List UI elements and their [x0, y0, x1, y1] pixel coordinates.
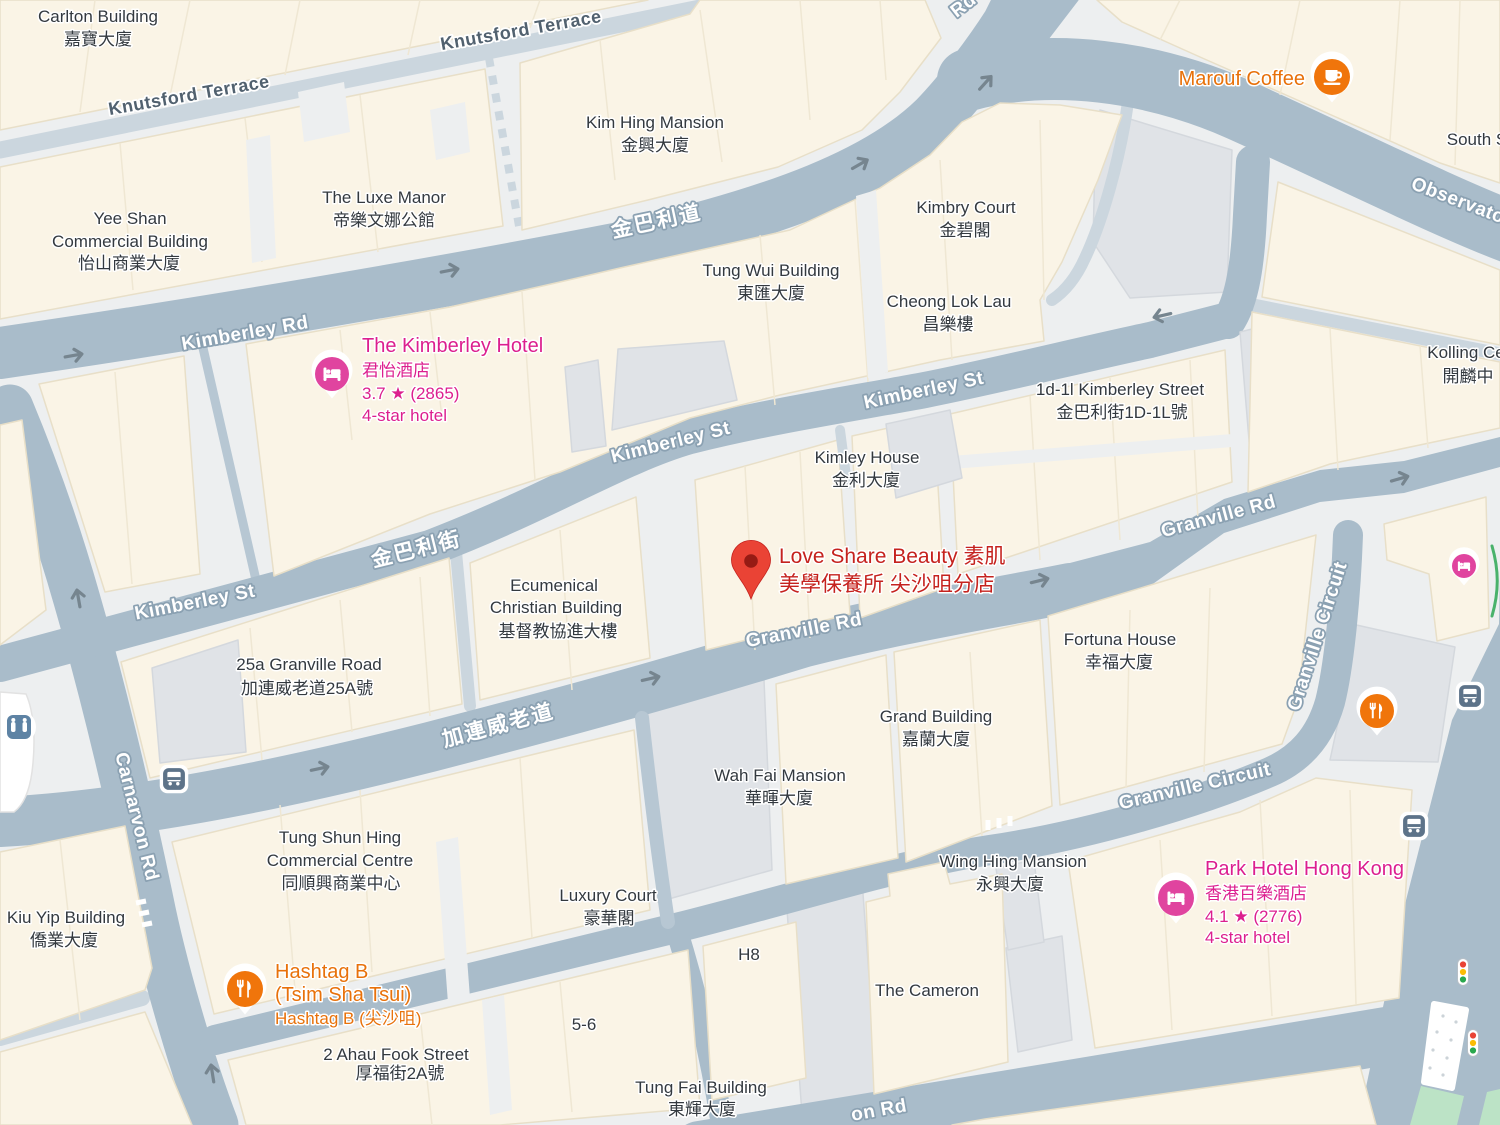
svg-text:怡山商業大廈: 怡山商業大廈	[78, 254, 180, 273]
svg-text:豪華閣: 豪華閣	[584, 908, 635, 928]
svg-text:Commercial Building: Commercial Building	[52, 232, 208, 251]
svg-text:永興大廈: 永興大廈	[976, 875, 1044, 894]
svg-text:The Kimberley Hotel: The Kimberley Hotel	[362, 335, 543, 357]
svg-text:Wah Fai Mansion: Wah Fai Mansion	[714, 766, 846, 785]
svg-text:僑業大廈: 僑業大廈	[30, 931, 98, 950]
svg-text:(Tsim Sha Tsui): (Tsim Sha Tsui)	[275, 984, 411, 1006]
svg-text:Tung Fai Building: Tung Fai Building	[635, 1078, 767, 1097]
svg-text:Love Share Beauty 素肌: Love Share Beauty 素肌	[779, 545, 1005, 568]
svg-text:Kolling Ce: Kolling Ce	[1427, 343, 1500, 362]
svg-text:厚福街2A號: 厚福街2A號	[356, 1064, 445, 1083]
svg-text:帝樂文娜公館: 帝樂文娜公館	[333, 211, 435, 230]
svg-text:25a Granville Road: 25a Granville Road	[236, 655, 382, 674]
svg-text:Hashtag B (尖沙咀): Hashtag B (尖沙咀)	[275, 1009, 421, 1028]
svg-text:Kimbry Court: Kimbry Court	[916, 198, 1015, 217]
svg-text:Tung Shun Hing: Tung Shun Hing	[279, 828, 401, 847]
svg-text:金興大廈: 金興大廈	[621, 136, 689, 155]
svg-text:Carlton Building: Carlton Building	[38, 7, 158, 26]
svg-text:Kimley House: Kimley House	[815, 448, 920, 467]
svg-text:Luxury Court: Luxury Court	[559, 886, 657, 905]
svg-text:加連威老道25A號: 加連威老道25A號	[241, 679, 373, 698]
svg-text:金利大廈: 金利大廈	[832, 471, 900, 490]
svg-text:金碧閣: 金碧閣	[940, 221, 991, 240]
svg-text:Cheong Lok Lau: Cheong Lok Lau	[887, 292, 1012, 311]
svg-text:The Luxe Manor: The Luxe Manor	[322, 188, 446, 207]
svg-text:3.7 ★ (2865): 3.7 ★ (2865)	[362, 384, 459, 403]
svg-text:Christian Building: Christian Building	[490, 598, 622, 617]
svg-text:South S: South S	[1447, 130, 1500, 149]
svg-text:4-star hotel: 4-star hotel	[362, 406, 447, 425]
svg-text:東輝大廈: 東輝大廈	[668, 1100, 736, 1119]
svg-text:嘉寶大廈: 嘉寶大廈	[64, 29, 132, 49]
svg-text:東匯大廈: 東匯大廈	[737, 284, 805, 303]
svg-text:華暉大廈: 華暉大廈	[745, 789, 813, 808]
svg-text:開麟中: 開麟中	[1443, 367, 1494, 386]
svg-text:基督教協進大樓: 基督教協進大樓	[499, 622, 618, 641]
svg-text:Hashtag B: Hashtag B	[275, 961, 368, 983]
svg-text:Tung Wui Building: Tung Wui Building	[702, 261, 839, 280]
svg-text:Wing Hing Mansion: Wing Hing Mansion	[939, 852, 1086, 871]
svg-text:幸福大廈: 幸福大廈	[1085, 653, 1153, 672]
svg-text:H8: H8	[738, 945, 760, 964]
svg-text:Ecumenical: Ecumenical	[510, 576, 598, 595]
svg-text:同順興商業中心: 同順興商業中心	[282, 874, 401, 893]
svg-text:Commercial Centre: Commercial Centre	[267, 851, 413, 870]
svg-text:Yee Shan: Yee Shan	[93, 209, 166, 228]
svg-text:香港百樂酒店: 香港百樂酒店	[1205, 884, 1307, 903]
svg-text:1d-1l Kimberley Street: 1d-1l Kimberley Street	[1036, 380, 1204, 399]
svg-text:2 Ahau Fook Street: 2 Ahau Fook Street	[323, 1045, 469, 1064]
svg-text:Kiu Yip Building: Kiu Yip Building	[7, 908, 125, 927]
svg-text:Marouf Coffee: Marouf Coffee	[1179, 68, 1305, 90]
svg-text:Grand Building: Grand Building	[880, 707, 992, 726]
svg-text:The Cameron: The Cameron	[875, 981, 979, 1000]
svg-text:昌樂樓: 昌樂樓	[923, 315, 974, 334]
svg-text:Fortuna House: Fortuna House	[1064, 630, 1176, 649]
svg-text:君怡酒店: 君怡酒店	[362, 361, 430, 380]
svg-text:Park Hotel Hong Kong: Park Hotel Hong Kong	[1205, 858, 1404, 880]
svg-text:4.1 ★ (2776): 4.1 ★ (2776)	[1205, 907, 1302, 926]
svg-text:4-star hotel: 4-star hotel	[1205, 928, 1290, 947]
svg-text:5-6: 5-6	[572, 1015, 597, 1034]
svg-text:美學保養所 尖沙咀分店: 美學保養所 尖沙咀分店	[779, 573, 995, 596]
svg-text:嘉蘭大廈: 嘉蘭大廈	[902, 730, 970, 749]
svg-text:金巴利街1D-1L號: 金巴利街1D-1L號	[1056, 403, 1187, 422]
svg-text:Kim Hing Mansion: Kim Hing Mansion	[586, 113, 724, 132]
